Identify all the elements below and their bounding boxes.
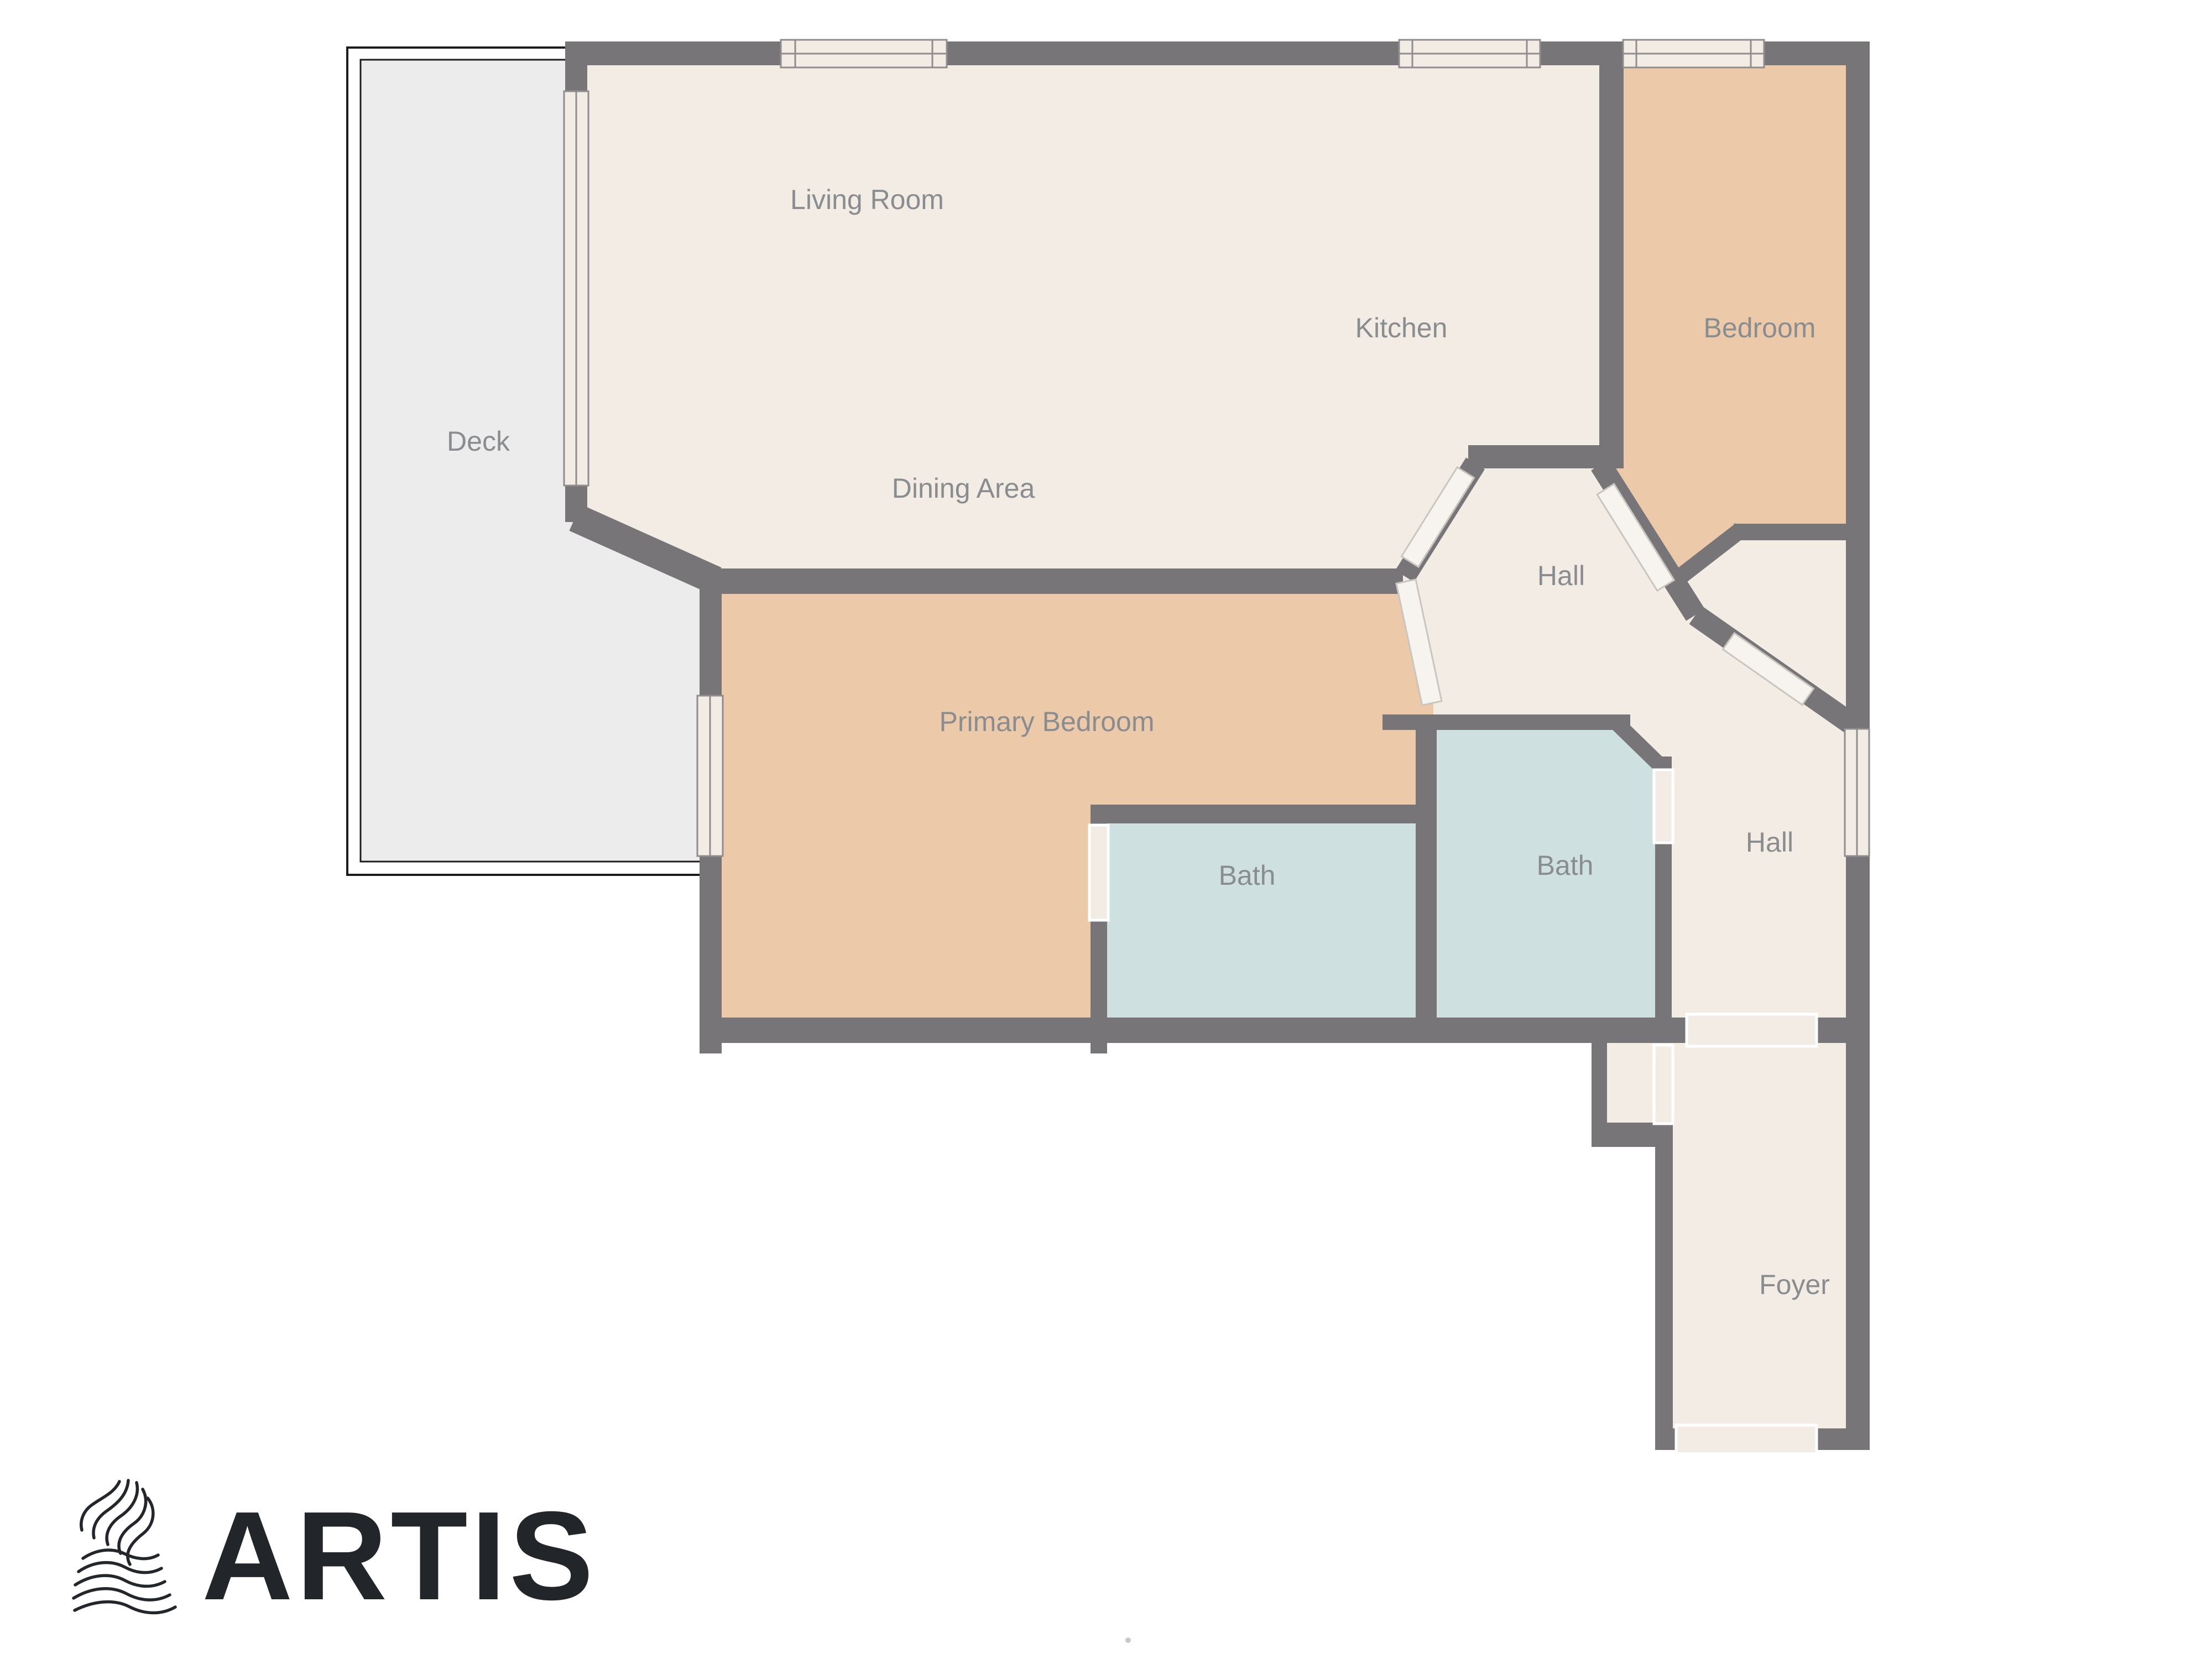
label-kitchen: Kitchen	[1355, 312, 1448, 343]
window-top-living	[781, 40, 947, 67]
door-alcove	[1654, 1045, 1673, 1124]
label-living-room: Living Room	[790, 184, 944, 215]
door-entry	[1676, 1425, 1817, 1454]
room-bath-right	[1426, 728, 1656, 1040]
label-bath-right: Bath	[1537, 850, 1594, 881]
wall-kitchen-bedroom-divider	[1599, 41, 1624, 468]
door-hall-to-foyer	[1687, 1014, 1817, 1046]
wall-bath-left-top	[1091, 805, 1422, 823]
floor-plan-page: Deck Living Room Kitchen Dining Area Bed…	[0, 0, 2212, 1659]
label-bedroom: Bedroom	[1704, 312, 1816, 343]
label-bath-left: Bath	[1219, 860, 1276, 891]
label-dining-area: Dining Area	[892, 473, 1035, 504]
window-hall-right	[1845, 729, 1869, 856]
artis-logo-mark-icon	[74, 1480, 175, 1613]
window-top-bedroom	[1623, 40, 1764, 67]
wall-hall-top	[1468, 445, 1600, 468]
wall-foyer-west	[1655, 1123, 1673, 1428]
wall-dining-bottom	[705, 568, 1403, 594]
label-hall-right: Hall	[1746, 827, 1793, 858]
wall-bedroom-bottom	[1734, 524, 1846, 540]
wall-left-top-stub	[565, 41, 587, 91]
door-bath-right	[1654, 770, 1673, 843]
label-deck: Deck	[447, 426, 510, 457]
window-living-left	[564, 91, 588, 486]
room-bath-left	[1102, 812, 1416, 1040]
page-dot	[1125, 1637, 1131, 1643]
window-top-kitchen	[1399, 40, 1540, 67]
floor-plan: Deck Living Room Kitchen Dining Area Bed…	[0, 0, 2212, 1659]
label-primary-bedroom: Primary Bedroom	[940, 706, 1155, 737]
label-hall-center: Hall	[1537, 560, 1585, 591]
artis-logo-text: ARTIS	[202, 1486, 597, 1626]
label-foyer: Foyer	[1759, 1269, 1830, 1300]
artis-logo: ARTIS	[74, 1480, 597, 1626]
wall-between-baths	[1416, 714, 1437, 1040]
door-bath-left	[1089, 825, 1108, 920]
window-primary-bedroom	[697, 696, 723, 856]
